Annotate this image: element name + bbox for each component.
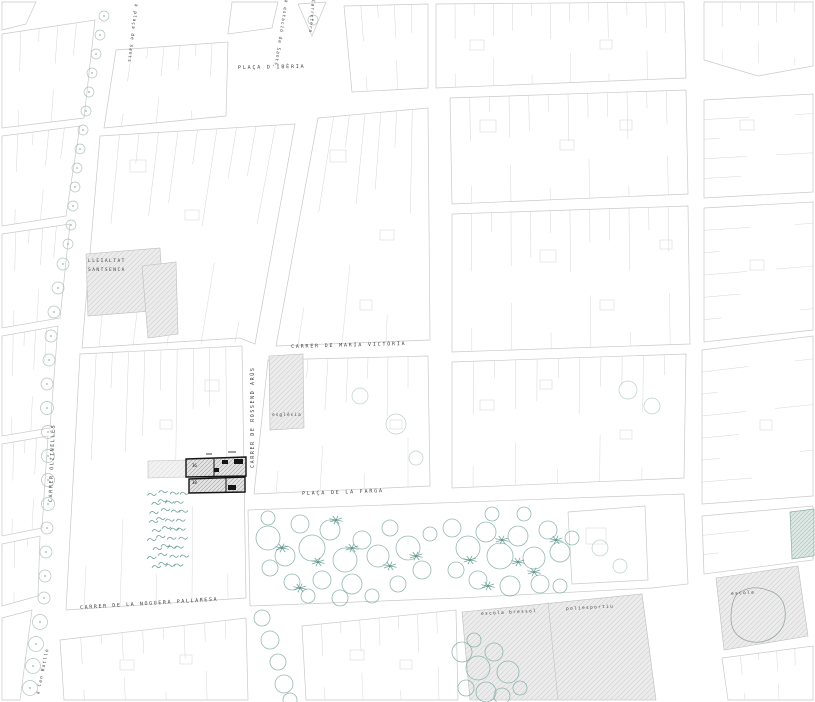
- parcel-detail-layer: [12, 2, 813, 700]
- label-lleialtat-santsenca-2: SANTSENCA: [88, 269, 126, 274]
- label-carrer-rossend-arus: CARRER DE ROSSEND ARÚS: [251, 367, 256, 468]
- label-esglesia: església: [272, 414, 302, 419]
- site-number-36: 36: [192, 464, 197, 468]
- map-canvas: [0, 0, 815, 702]
- site-number-38: 38: [192, 481, 197, 485]
- site-plan-map: PLAÇA D'IBÈRIA a plaça de Sants a estaci…: [0, 0, 815, 702]
- label-lleialtat-santsenca: LLEIALTAT: [88, 260, 126, 265]
- project-site-buildings: [148, 452, 246, 493]
- city-blocks-layer: [2, 2, 813, 700]
